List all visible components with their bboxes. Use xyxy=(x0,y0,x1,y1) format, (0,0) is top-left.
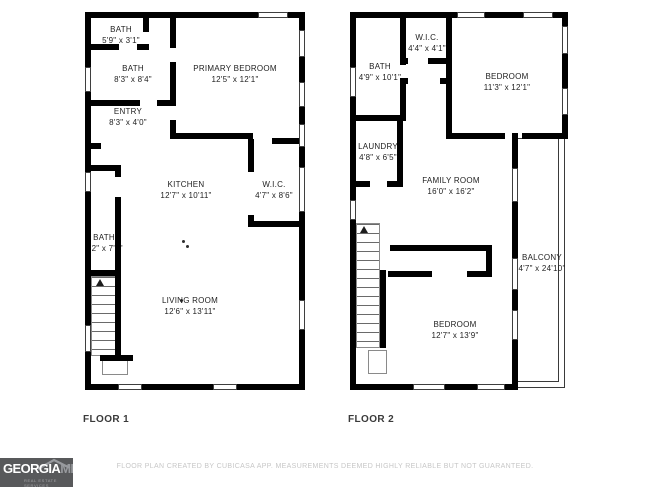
floor1-plan: BATH 5'9" x 3'1" BATH 8'3" x 8'4" PRIMAR… xyxy=(85,12,305,390)
room-label-bath: BATH 4'9" x 10'1" xyxy=(359,61,401,83)
window xyxy=(85,325,91,352)
room-label-laundry: LAUNDRY 4'8" x 6'5" xyxy=(358,141,398,163)
wall-segment xyxy=(115,197,121,360)
room-dims: 8'3" x 4'0" xyxy=(109,117,147,128)
room-name: LIVING ROOM xyxy=(162,295,218,306)
window xyxy=(299,82,305,107)
wall-segment xyxy=(400,78,406,120)
room-dims: 12'7" x 10'11" xyxy=(160,190,211,201)
room-dims: 12'6" x 13'11" xyxy=(162,306,218,317)
room-dims: 4'4" x 4'1" xyxy=(408,43,446,54)
window xyxy=(213,384,237,390)
wall-segment xyxy=(400,78,408,84)
room-label-bedroom-upper: BEDROOM 11'3" x 12'1" xyxy=(484,71,531,93)
room-dims: 4'7" x 8'6" xyxy=(255,190,293,201)
logo-wordmark: GEORGIAMLS xyxy=(3,462,73,475)
wall-segment xyxy=(85,143,101,149)
room-label-wic: W.I.C. 4'7" x 8'6" xyxy=(255,179,293,201)
room-name: FAMILY ROOM xyxy=(422,175,480,186)
floor2-plan: BATH 4'9" x 10'1" W.I.C. 4'4" x 4'1" BED… xyxy=(350,12,568,390)
room-name: PRIMARY BEDROOM xyxy=(193,63,276,74)
room-label-kitchen: KITCHEN 12'7" x 10'11" xyxy=(160,179,211,201)
room-dims: 16'0" x 16'2" xyxy=(422,186,480,197)
window xyxy=(85,67,91,92)
room-label-family-room: FAMILY ROOM 16'0" x 16'2" xyxy=(422,175,480,197)
room-label-entry: ENTRY 8'3" x 4'0" xyxy=(109,106,147,128)
window xyxy=(457,12,485,18)
room-label-bedroom-lower: BEDROOM 12'7" x 13'9" xyxy=(431,319,478,341)
georgia-mls-logo: GEORGIAMLS REAL ESTATE SERVICES xyxy=(0,458,73,487)
window xyxy=(299,124,305,147)
room-dims: 12'5" x 12'1" xyxy=(193,74,276,85)
logo-brand: GEORGIA xyxy=(3,461,60,476)
room-label-wic: W.I.C. 4'4" x 4'1" xyxy=(408,32,446,54)
wall-segment xyxy=(390,245,492,251)
room-name: BALCONY xyxy=(518,252,565,263)
window xyxy=(512,258,518,290)
wall-segment xyxy=(467,271,492,277)
wall-segment xyxy=(157,100,176,106)
room-name: W.I.C. xyxy=(255,179,293,190)
wall-segment xyxy=(137,44,149,50)
wall-segment xyxy=(100,355,133,361)
floor1-staircase xyxy=(91,276,116,356)
wall-segment xyxy=(350,181,370,187)
room-dims: 8'3" x 8'4" xyxy=(114,74,152,85)
window xyxy=(523,12,553,18)
window xyxy=(299,30,305,57)
room-dims: 4'8" x 6'5" xyxy=(358,152,398,163)
floor2-caption: FLOOR 2 xyxy=(348,414,394,425)
disclaimer-text: FLOOR PLAN CREATED BY CUBICASA APP. MEAS… xyxy=(0,463,650,470)
window xyxy=(258,12,288,18)
room-label-primary-bedroom: PRIMARY BEDROOM 12'5" x 12'1" xyxy=(193,63,276,85)
wall-segment xyxy=(380,270,386,348)
window xyxy=(512,310,518,340)
wall-segment xyxy=(85,270,121,276)
wall-segment xyxy=(170,62,176,100)
room-label-balcony: BALCONY 4'7" x 24'10" xyxy=(518,252,565,274)
room-name: BEDROOM xyxy=(431,319,478,330)
window xyxy=(562,88,568,115)
room-dims: 11'3" x 12'1" xyxy=(484,82,531,93)
floor2-staircase xyxy=(356,223,380,348)
wall-segment xyxy=(115,165,121,177)
window xyxy=(118,384,142,390)
window xyxy=(299,300,305,330)
window xyxy=(350,200,356,220)
room-name: KITCHEN xyxy=(160,179,211,190)
floor1-stairs-up-arrow xyxy=(96,279,104,286)
room-name: BATH xyxy=(102,24,140,35)
floor1-stair-landing xyxy=(102,360,128,375)
window xyxy=(562,26,568,54)
window xyxy=(299,167,305,212)
wall-segment xyxy=(85,44,119,50)
room-name: BEDROOM xyxy=(484,71,531,82)
floor-plan-page: BATH 5'9" x 3'1" BATH 8'3" x 8'4" PRIMAR… xyxy=(0,0,650,487)
logo-suffix: MLS xyxy=(60,461,73,476)
window xyxy=(413,384,445,390)
window xyxy=(350,67,356,97)
wall-segment xyxy=(143,12,149,32)
floor2-stairs-up-arrow xyxy=(360,226,368,233)
room-name: LAUNDRY xyxy=(358,141,398,152)
room-dims: 4'7" x 24'10" xyxy=(518,263,565,274)
room-label-bath-2: BATH 8'3" x 8'4" xyxy=(114,63,152,85)
wall-segment xyxy=(170,133,253,139)
floor1-marker-dot xyxy=(186,245,189,248)
window xyxy=(512,168,518,202)
wall-segment xyxy=(388,271,432,277)
wall-segment xyxy=(522,133,568,139)
wall-segment xyxy=(248,221,305,227)
window xyxy=(85,172,91,192)
floor1-marker-dot xyxy=(182,240,185,243)
wall-segment xyxy=(85,100,140,106)
room-name: BATH xyxy=(359,61,401,72)
room-name: BATH xyxy=(114,63,152,74)
room-label-living-room: LIVING ROOM 12'6" x 13'11" xyxy=(162,295,218,317)
wall-segment xyxy=(85,165,115,171)
wall-segment xyxy=(397,120,403,187)
wall-segment xyxy=(248,139,254,172)
wall-segment xyxy=(170,12,176,48)
wall-segment xyxy=(446,133,505,139)
wall-segment xyxy=(387,181,403,187)
logo-tagline: REAL ESTATE SERVICES xyxy=(24,478,73,487)
room-label-bath-1: BATH 5'9" x 3'1" xyxy=(102,24,140,46)
floor2-stair-landing xyxy=(368,350,387,374)
room-name: ENTRY xyxy=(109,106,147,117)
room-dims: 4'9" x 10'1" xyxy=(359,72,401,83)
room-dims: 12'7" x 13'9" xyxy=(431,330,478,341)
room-name: W.I.C. xyxy=(408,32,446,43)
wall-segment xyxy=(446,12,452,139)
window xyxy=(477,384,505,390)
wall-segment xyxy=(400,58,408,64)
floor1-caption: FLOOR 1 xyxy=(83,414,129,425)
